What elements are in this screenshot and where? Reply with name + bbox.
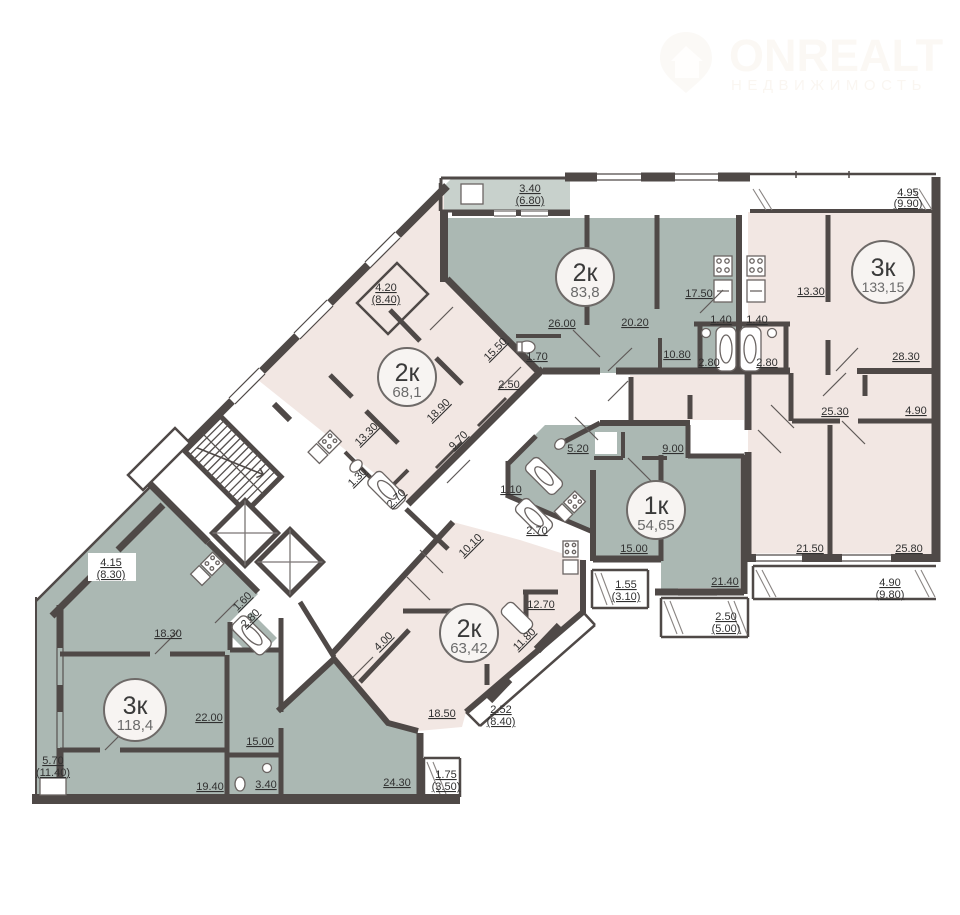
svg-text:18.50: 18.50 — [428, 708, 456, 720]
svg-text:3.40: 3.40 — [255, 779, 276, 791]
svg-text:(8.40): (8.40) — [487, 716, 516, 728]
svg-text:10.80: 10.80 — [663, 349, 691, 361]
svg-text:63,42: 63,42 — [450, 640, 488, 657]
svg-text:2.70: 2.70 — [526, 525, 547, 537]
svg-text:1.75: 1.75 — [435, 769, 456, 781]
svg-text:12.70: 12.70 — [527, 599, 555, 611]
svg-text:17.50: 17.50 — [685, 288, 713, 300]
svg-text:2к: 2к — [457, 615, 483, 643]
svg-text:25.80: 25.80 — [895, 543, 923, 555]
svg-text:4.90: 4.90 — [905, 405, 926, 417]
svg-text:118,4: 118,4 — [117, 717, 153, 734]
svg-text:22.00: 22.00 — [195, 712, 223, 724]
svg-text:(9.80): (9.80) — [876, 589, 905, 601]
svg-text:4.15: 4.15 — [100, 557, 121, 569]
svg-text:24.30: 24.30 — [383, 777, 411, 789]
svg-text:54,65: 54,65 — [637, 517, 675, 534]
svg-text:(6.80): (6.80) — [516, 195, 545, 207]
svg-text:28.30: 28.30 — [892, 351, 920, 363]
svg-text:9.00: 9.00 — [662, 443, 683, 455]
svg-text:1.40: 1.40 — [710, 314, 731, 326]
svg-text:25.30: 25.30 — [821, 406, 849, 418]
svg-text:1.10: 1.10 — [500, 484, 521, 496]
svg-text:2.80: 2.80 — [698, 357, 719, 369]
svg-text:(5.00): (5.00) — [712, 623, 741, 635]
svg-text:2.52: 2.52 — [490, 704, 511, 716]
svg-text:83,8: 83,8 — [570, 284, 599, 301]
svg-text:15.00: 15.00 — [246, 736, 274, 748]
svg-text:1.40: 1.40 — [746, 314, 767, 326]
svg-text:2к: 2к — [395, 359, 421, 387]
svg-text:(8.40): (8.40) — [372, 294, 401, 306]
svg-text:15.00: 15.00 — [620, 543, 648, 555]
svg-text:4.20: 4.20 — [375, 282, 396, 294]
svg-text:3к: 3к — [123, 692, 149, 720]
svg-text:5.20: 5.20 — [567, 443, 588, 455]
svg-text:2.50: 2.50 — [715, 611, 736, 623]
svg-text:НЕДВИЖИМОСТЬ: НЕДВИЖИМОСТЬ — [731, 77, 927, 94]
svg-text:(9.90): (9.90) — [894, 198, 923, 210]
svg-text:2.80: 2.80 — [756, 357, 777, 369]
svg-text:(8.30): (8.30) — [97, 569, 126, 581]
svg-text:2.50: 2.50 — [498, 379, 519, 391]
svg-text:68,1: 68,1 — [392, 384, 421, 401]
svg-text:21.40: 21.40 — [711, 576, 739, 588]
svg-text:13.30: 13.30 — [797, 286, 825, 298]
svg-text:4.90: 4.90 — [879, 577, 900, 589]
svg-text:(3.10): (3.10) — [612, 591, 641, 603]
svg-text:18.30: 18.30 — [154, 628, 182, 640]
svg-text:26.00: 26.00 — [548, 318, 576, 330]
svg-text:3.40: 3.40 — [519, 183, 540, 195]
svg-text:5.70: 5.70 — [42, 755, 63, 767]
svg-text:1.70: 1.70 — [526, 351, 547, 363]
svg-text:133,15: 133,15 — [862, 279, 905, 295]
svg-text:(11.40): (11.40) — [36, 767, 70, 779]
svg-text:20.20: 20.20 — [621, 317, 649, 329]
svg-text:1к: 1к — [644, 492, 670, 520]
svg-text:1.55: 1.55 — [615, 579, 636, 591]
svg-text:21.50: 21.50 — [796, 543, 824, 555]
svg-text:2к: 2к — [573, 259, 599, 287]
svg-text:19.40: 19.40 — [196, 781, 224, 793]
svg-text:ONREALT: ONREALT — [729, 30, 943, 81]
svg-text:(3.50): (3.50) — [432, 781, 461, 793]
svg-text:3к: 3к — [871, 254, 897, 282]
